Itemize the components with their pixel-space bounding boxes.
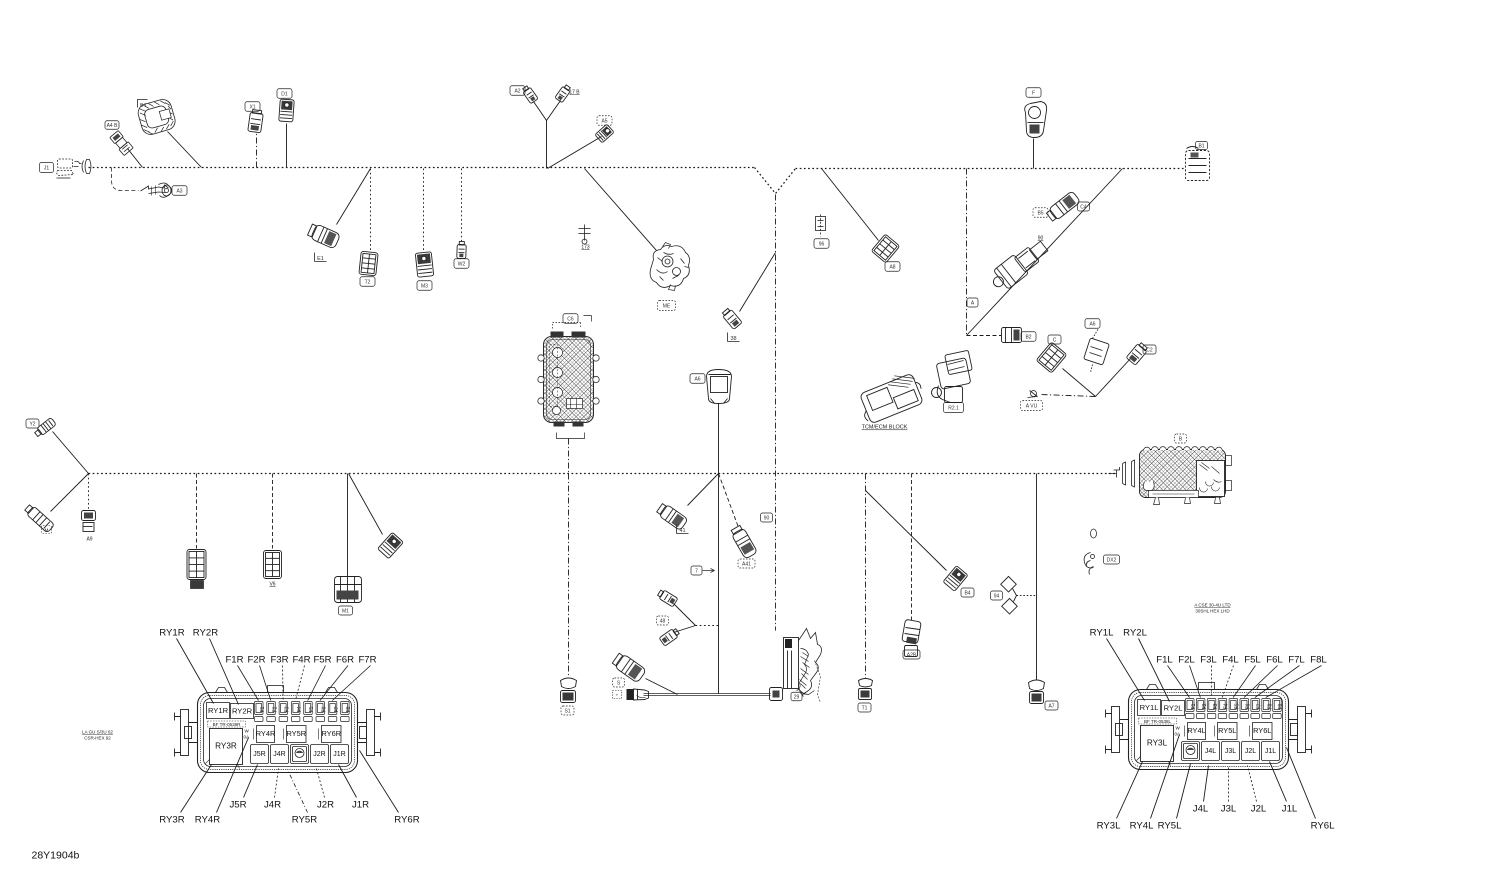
svg-text:F8L: F8L [1310, 655, 1327, 666]
svg-text:B2: B2 [1025, 334, 1031, 340]
svg-text:A CSE 30-4U LTD: A CSE 30-4U LTD [1194, 603, 1231, 608]
svg-text:RY6L: RY6L [1311, 821, 1335, 832]
svg-text:F2: F2 [272, 706, 278, 712]
svg-text:RY4L: RY4L [1130, 821, 1154, 832]
svg-text:DX2: DX2 [1107, 557, 1117, 563]
svg-text:A2: A2 [514, 88, 520, 94]
svg-text:T2: T2 [365, 279, 371, 285]
svg-text:A2B: A2B [907, 652, 917, 658]
svg-text:A6: A6 [1089, 321, 1095, 327]
svg-text:RY4L: RY4L [1187, 726, 1205, 735]
svg-text:S1: S1 [564, 708, 570, 714]
svg-text:F6L: F6L [1266, 655, 1283, 666]
svg-text:J4L: J4L [1193, 804, 1209, 815]
svg-text:F3R: F3R [270, 655, 288, 666]
svg-text:C: C [1053, 337, 1057, 343]
svg-text:96: 96 [819, 241, 825, 247]
svg-text:LA GU S/3U 02: LA GU S/3U 02 [82, 730, 113, 735]
svg-text:RY6L: RY6L [1253, 726, 1271, 735]
svg-text:B4: B4 [140, 103, 146, 109]
svg-text:F5L: F5L [1244, 655, 1261, 666]
svg-text:F5: F5 [309, 706, 315, 712]
svg-text:F4: F4 [297, 706, 303, 712]
svg-text:RY5R: RY5R [286, 729, 306, 738]
svg-text:J1L: J1L [1282, 804, 1298, 815]
svg-text:CSR-HEX 92: CSR-HEX 92 [84, 736, 111, 741]
svg-text:90: 90 [764, 515, 770, 521]
svg-text:J1R: J1R [352, 800, 369, 811]
svg-text:RY5L: RY5L [1218, 726, 1236, 735]
svg-text:T1: T1 [862, 705, 868, 711]
svg-text:28Y1904b: 28Y1904b [32, 850, 80, 862]
svg-text:94: 94 [994, 593, 1000, 599]
svg-text:17 B: 17 B [569, 90, 580, 96]
svg-text:A4 B: A4 B [107, 123, 119, 129]
svg-text:A41: A41 [742, 561, 751, 567]
svg-text:90: 90 [1038, 236, 1044, 242]
svg-text:173: 173 [581, 245, 590, 251]
svg-text:J5R: J5R [229, 800, 246, 811]
svg-text:J3L: J3L [1221, 804, 1237, 815]
svg-text:F1L: F1L [1156, 655, 1173, 666]
svg-text:RY1R: RY1R [208, 706, 229, 715]
svg-text:F6R: F6R [336, 655, 354, 666]
svg-text:48: 48 [660, 618, 666, 624]
svg-text:M3: M3 [421, 283, 428, 289]
svg-text:RY2R: RY2R [193, 628, 218, 639]
svg-text:A6: A6 [694, 376, 700, 382]
svg-text:B4: B4 [964, 590, 970, 596]
svg-text:B5: B5 [1037, 210, 1043, 216]
svg-text:F: F [1032, 90, 1035, 96]
svg-text:RY5R: RY5R [292, 815, 317, 826]
svg-text:F6: F6 [322, 706, 328, 712]
svg-text:X1: X1 [249, 104, 255, 110]
svg-text:J3L: J3L [1225, 748, 1236, 755]
svg-text:A7: A7 [1048, 703, 1054, 709]
svg-text:J4L: J4L [1205, 748, 1216, 755]
svg-text:E1: E1 [317, 256, 324, 262]
svg-text:F7R: F7R [358, 655, 376, 666]
svg-text:J4R: J4R [264, 800, 281, 811]
svg-text:J1R: J1R [333, 751, 345, 758]
svg-text:RY5L: RY5L [1158, 821, 1182, 832]
svg-text:W2: W2 [458, 261, 466, 267]
svg-text:RY2R: RY2R [232, 707, 253, 716]
svg-text:RY6R: RY6R [321, 729, 341, 738]
svg-text:F7L: F7L [1288, 655, 1305, 666]
svg-text:+: + [616, 693, 619, 698]
svg-text:ME: ME [663, 303, 671, 309]
svg-text:F4L: F4L [1222, 655, 1239, 666]
svg-text:C6: C6 [567, 316, 574, 322]
svg-text:F5R: F5R [313, 655, 331, 666]
svg-text:7: 7 [695, 568, 698, 574]
svg-text:RY1R: RY1R [159, 628, 184, 639]
svg-text:R2.1: R2.1 [948, 405, 959, 411]
svg-text:F9: F9 [1278, 703, 1284, 709]
svg-text:TCM/ECM BLOCK: TCM/ECM BLOCK [862, 425, 908, 431]
svg-text:J2L: J2L [1251, 804, 1267, 815]
svg-text:A9: A9 [86, 537, 92, 543]
svg-text:A VU: A VU [1026, 403, 1038, 409]
svg-text:J2R: J2R [317, 800, 334, 811]
svg-text:J1: J1 [44, 165, 50, 171]
svg-text:RY6R: RY6R [394, 815, 419, 826]
svg-text:RY3L: RY3L [1097, 821, 1121, 832]
svg-text:F3: F3 [285, 706, 291, 712]
svg-text:J4R: J4R [273, 751, 285, 758]
svg-text:M: M [45, 528, 49, 533]
svg-text:F1: F1 [260, 706, 266, 712]
svg-text:J5R: J5R [253, 751, 265, 758]
svg-text:RY4R: RY4R [195, 815, 220, 826]
svg-text:C2: C2 [1146, 347, 1153, 353]
svg-text:RY1L: RY1L [1140, 703, 1159, 712]
svg-text:RY1L: RY1L [1090, 628, 1114, 639]
svg-text:B1: B1 [1198, 143, 1204, 149]
svg-text:F2L: F2L [1178, 655, 1195, 666]
svg-text:F1R: F1R [225, 655, 243, 666]
svg-text:RY2L: RY2L [1123, 628, 1147, 639]
svg-text:F3L: F3L [1200, 655, 1217, 666]
svg-text:C4: C4 [1080, 204, 1087, 210]
svg-text:29: 29 [794, 694, 800, 700]
svg-text:F8: F8 [346, 706, 352, 712]
svg-text:RY3L: RY3L [1147, 739, 1168, 748]
svg-text:38: 38 [730, 336, 736, 342]
svg-text:BF TR-0538R: BF TR-0538R [213, 722, 241, 727]
svg-text:30SHL HEX LHD: 30SHL HEX LHD [1195, 609, 1230, 614]
svg-text:RY2L: RY2L [1164, 704, 1183, 713]
svg-text:41: 41 [679, 528, 685, 534]
svg-text:RY3R: RY3R [215, 742, 237, 751]
svg-text:F7: F7 [334, 706, 340, 712]
svg-text:M1: M1 [342, 608, 349, 614]
svg-text:A8: A8 [889, 264, 895, 270]
svg-text:F4R: F4R [292, 655, 310, 666]
svg-text:RY3R: RY3R [159, 815, 184, 826]
svg-text:Y2: Y2 [29, 421, 35, 427]
svg-text:A5: A5 [601, 118, 607, 124]
svg-text:BF TR-0538L: BF TR-0538L [1144, 719, 1171, 724]
svg-text:D1: D1 [281, 91, 288, 97]
svg-text:F2R: F2R [247, 655, 265, 666]
svg-text:J2L: J2L [1245, 748, 1256, 755]
svg-text:V6: V6 [269, 582, 275, 588]
svg-text:RY4R: RY4R [256, 729, 276, 738]
svg-text:J2R: J2R [313, 751, 325, 758]
svg-text:J1L: J1L [1265, 748, 1276, 755]
svg-text:A3: A3 [176, 188, 182, 194]
